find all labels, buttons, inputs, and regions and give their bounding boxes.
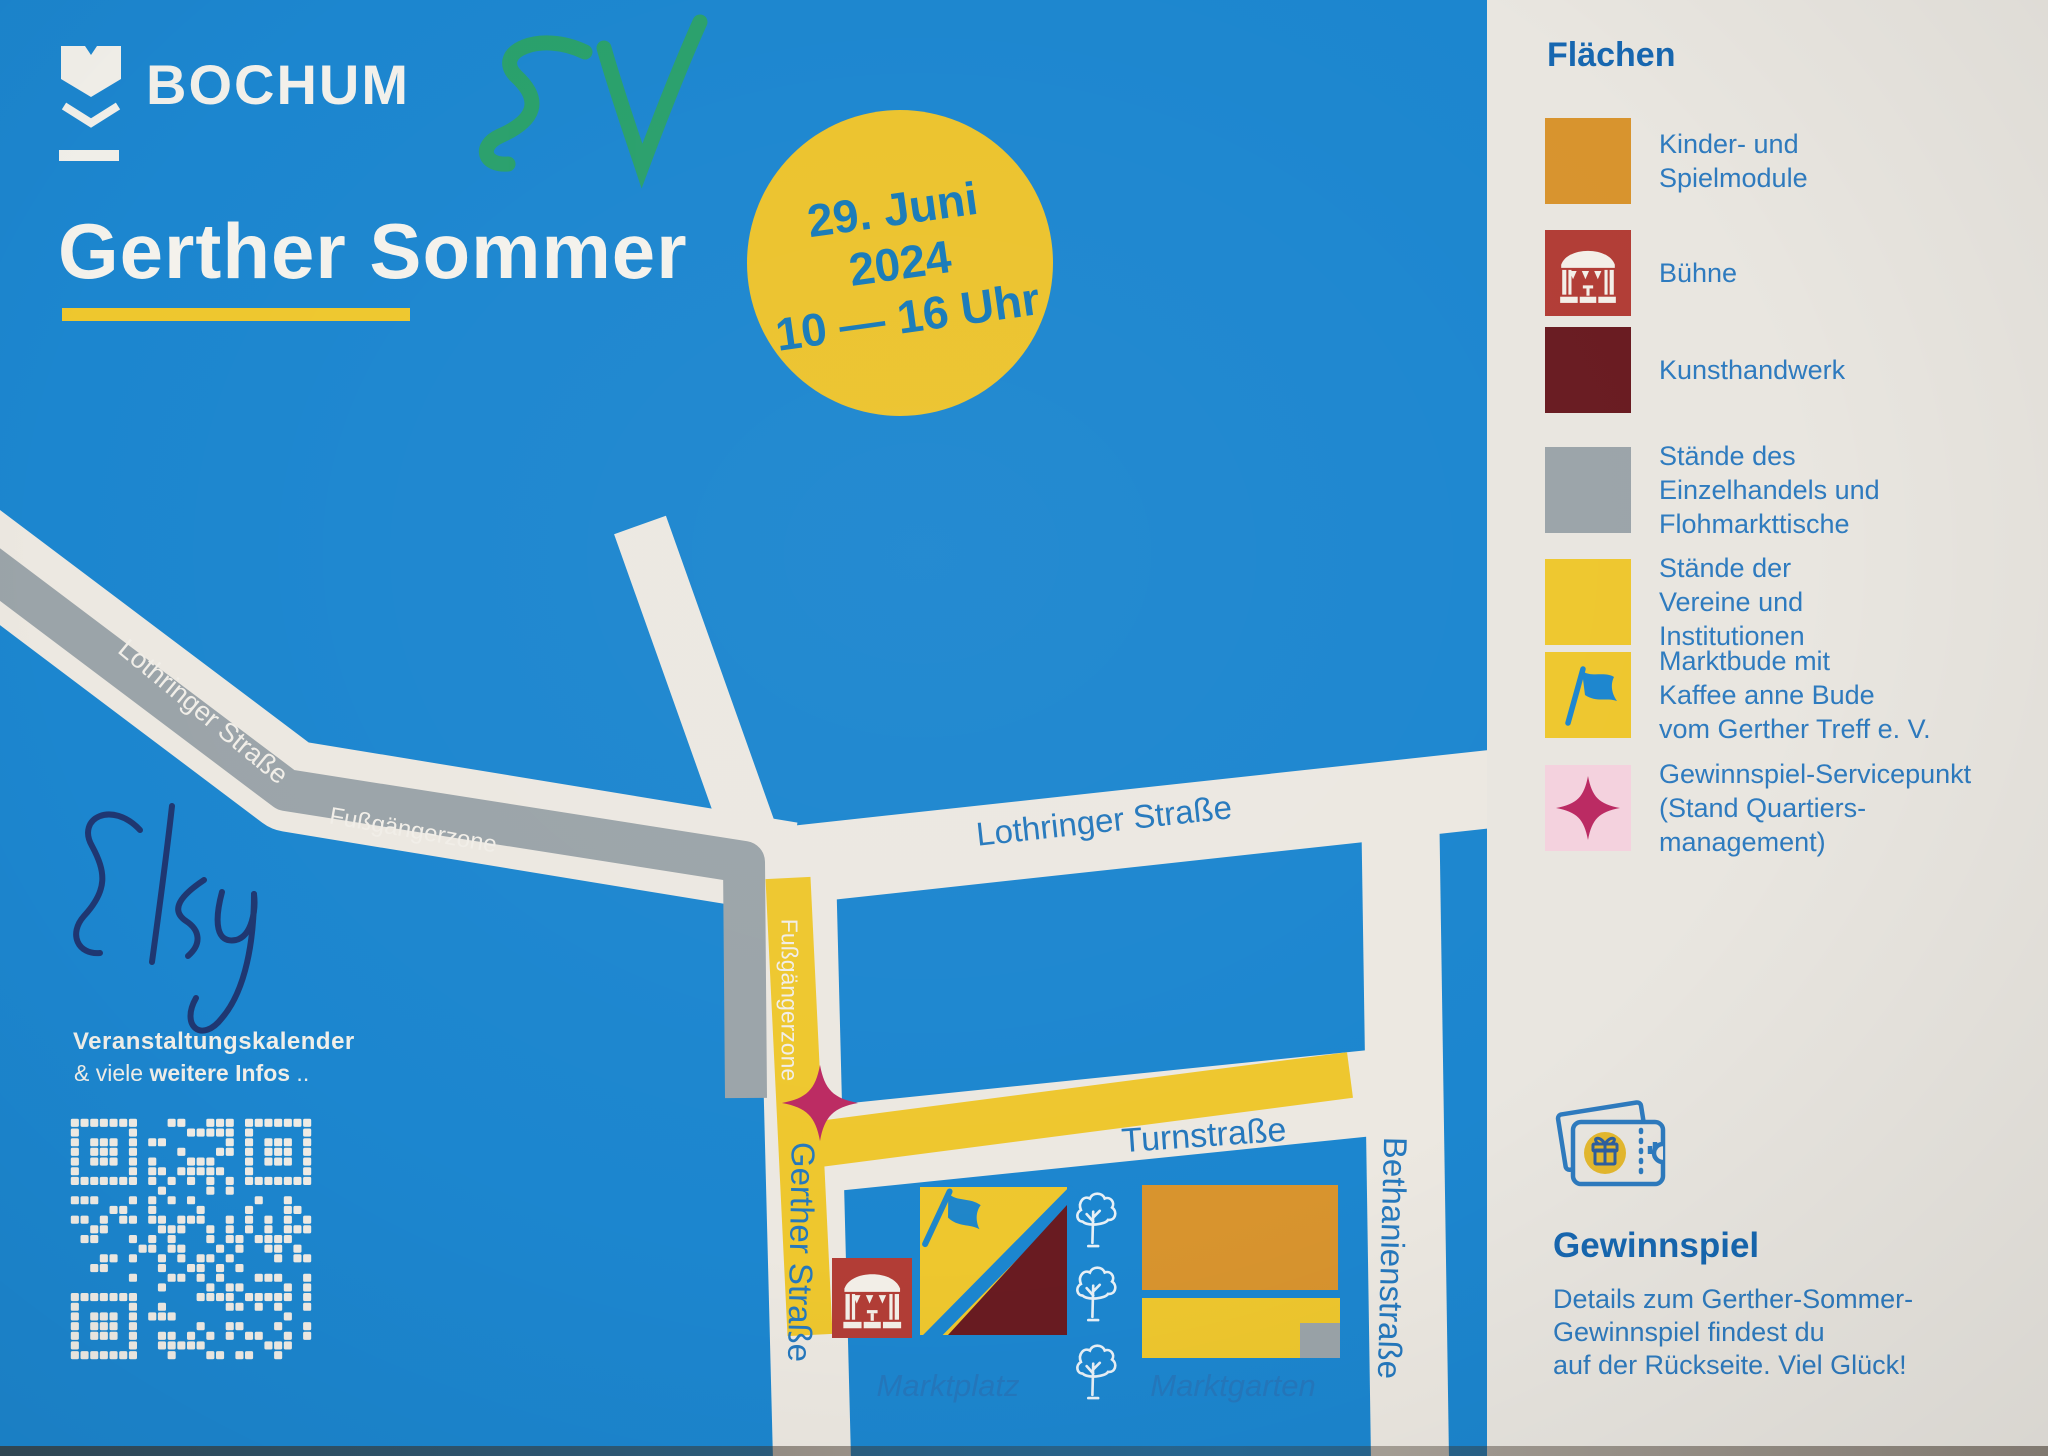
marktgarten-orange-block [1142,1185,1338,1290]
date-badge-text: 29. Juni 2024 10 — 16 Uhr [727,90,1073,436]
legend-item-label: Stände der Vereine und Institutionen [1659,551,1805,653]
swatch-maroon [1545,327,1631,413]
area-label-marktplatz: Marktplatz [877,1368,1020,1404]
photo-bottom-edge [0,1446,2048,1456]
legend-item-kunsthandwerk: Kunsthandwerk [1545,327,1845,413]
sparkle-star-icon [1545,765,1631,851]
legend-title: Flächen [1547,36,1675,75]
gewinnspiel-title: Gewinnspiel [1553,1226,1759,1266]
calendar-note-prefix: & viele [74,1060,149,1086]
legend-item-einzelhandel: Stände des Einzelhandels und Flohmarktti… [1545,439,1880,541]
area-label-marktgarten: Marktgarten [1150,1368,1315,1404]
legend-item-marktbude: Marktbude mit Kaffee anne Bude vom Gerth… [1545,644,1931,746]
marktgarten-gray-block [1300,1323,1340,1358]
legend-item-vereine: Stände der Vereine und Institutionen [1545,551,1805,653]
calendar-note-line2: & viele weitere Infos .. [74,1060,309,1087]
handwriting-sv [486,22,700,166]
pedestrian-zone-label-south: Fußgängerzone [776,919,803,1081]
event-flyer-poster: BOCHUM Gerther Sommer 29. Juni 2024 10 —… [0,0,2048,1456]
legend-sidebar: Flächen Kinder- und Spielmodule Bühne Ku… [1487,0,2048,1456]
calendar-note-bold: weitere Infos [149,1060,290,1086]
swatch-orange [1545,118,1631,204]
swatch-gray [1545,447,1631,533]
pavilion-icon [1545,230,1631,316]
page-title: Gerther Sommer [58,206,688,297]
legend-item-label: Gewinnspiel-Servicepunkt (Stand Quartier… [1659,757,1971,859]
legend-item-label: Marktbude mit Kaffee anne Bude vom Gerth… [1659,644,1931,746]
street-label-gerther: Gerther Straße [780,1142,822,1363]
ticket-gift-icon [1549,1092,1683,1204]
calendar-note-line1: Veranstaltungskalender [73,1028,355,1056]
handwriting-sky [76,806,254,1031]
tree-icons [1077,1194,1115,1398]
legend-item-label: Kinder- und Spielmodule [1659,127,1808,195]
brand-wordmark: BOCHUM [146,52,410,117]
legend-item-servicepunkt: Gewinnspiel-Servicepunkt (Stand Quartier… [1545,757,1971,859]
legend-item-label: Bühne [1659,256,1737,290]
date-badge: 29. Juni 2024 10 — 16 Uhr [747,110,1053,416]
street-label-bethanienstrasse: Bethanienstraße [1370,1136,1414,1379]
bochum-logo-book-icon [59,46,121,161]
legend-item-spielmodule: Kinder- und Spielmodule [1545,118,1808,204]
swatch-yellow [1545,559,1631,645]
gewinnspiel-details: Details zum Gerther-Sommer- Gewinnspiel … [1553,1283,1913,1382]
legend-item-label: Stände des Einzelhandels und Flohmarktti… [1659,439,1880,541]
qr-code [70,1118,312,1360]
flag-icon [1545,652,1631,738]
title-underline [62,308,410,321]
calendar-note-suffix: .. [290,1060,309,1086]
legend-item-buehne: Bühne [1545,230,1737,316]
legend-item-label: Kunsthandwerk [1659,353,1845,387]
